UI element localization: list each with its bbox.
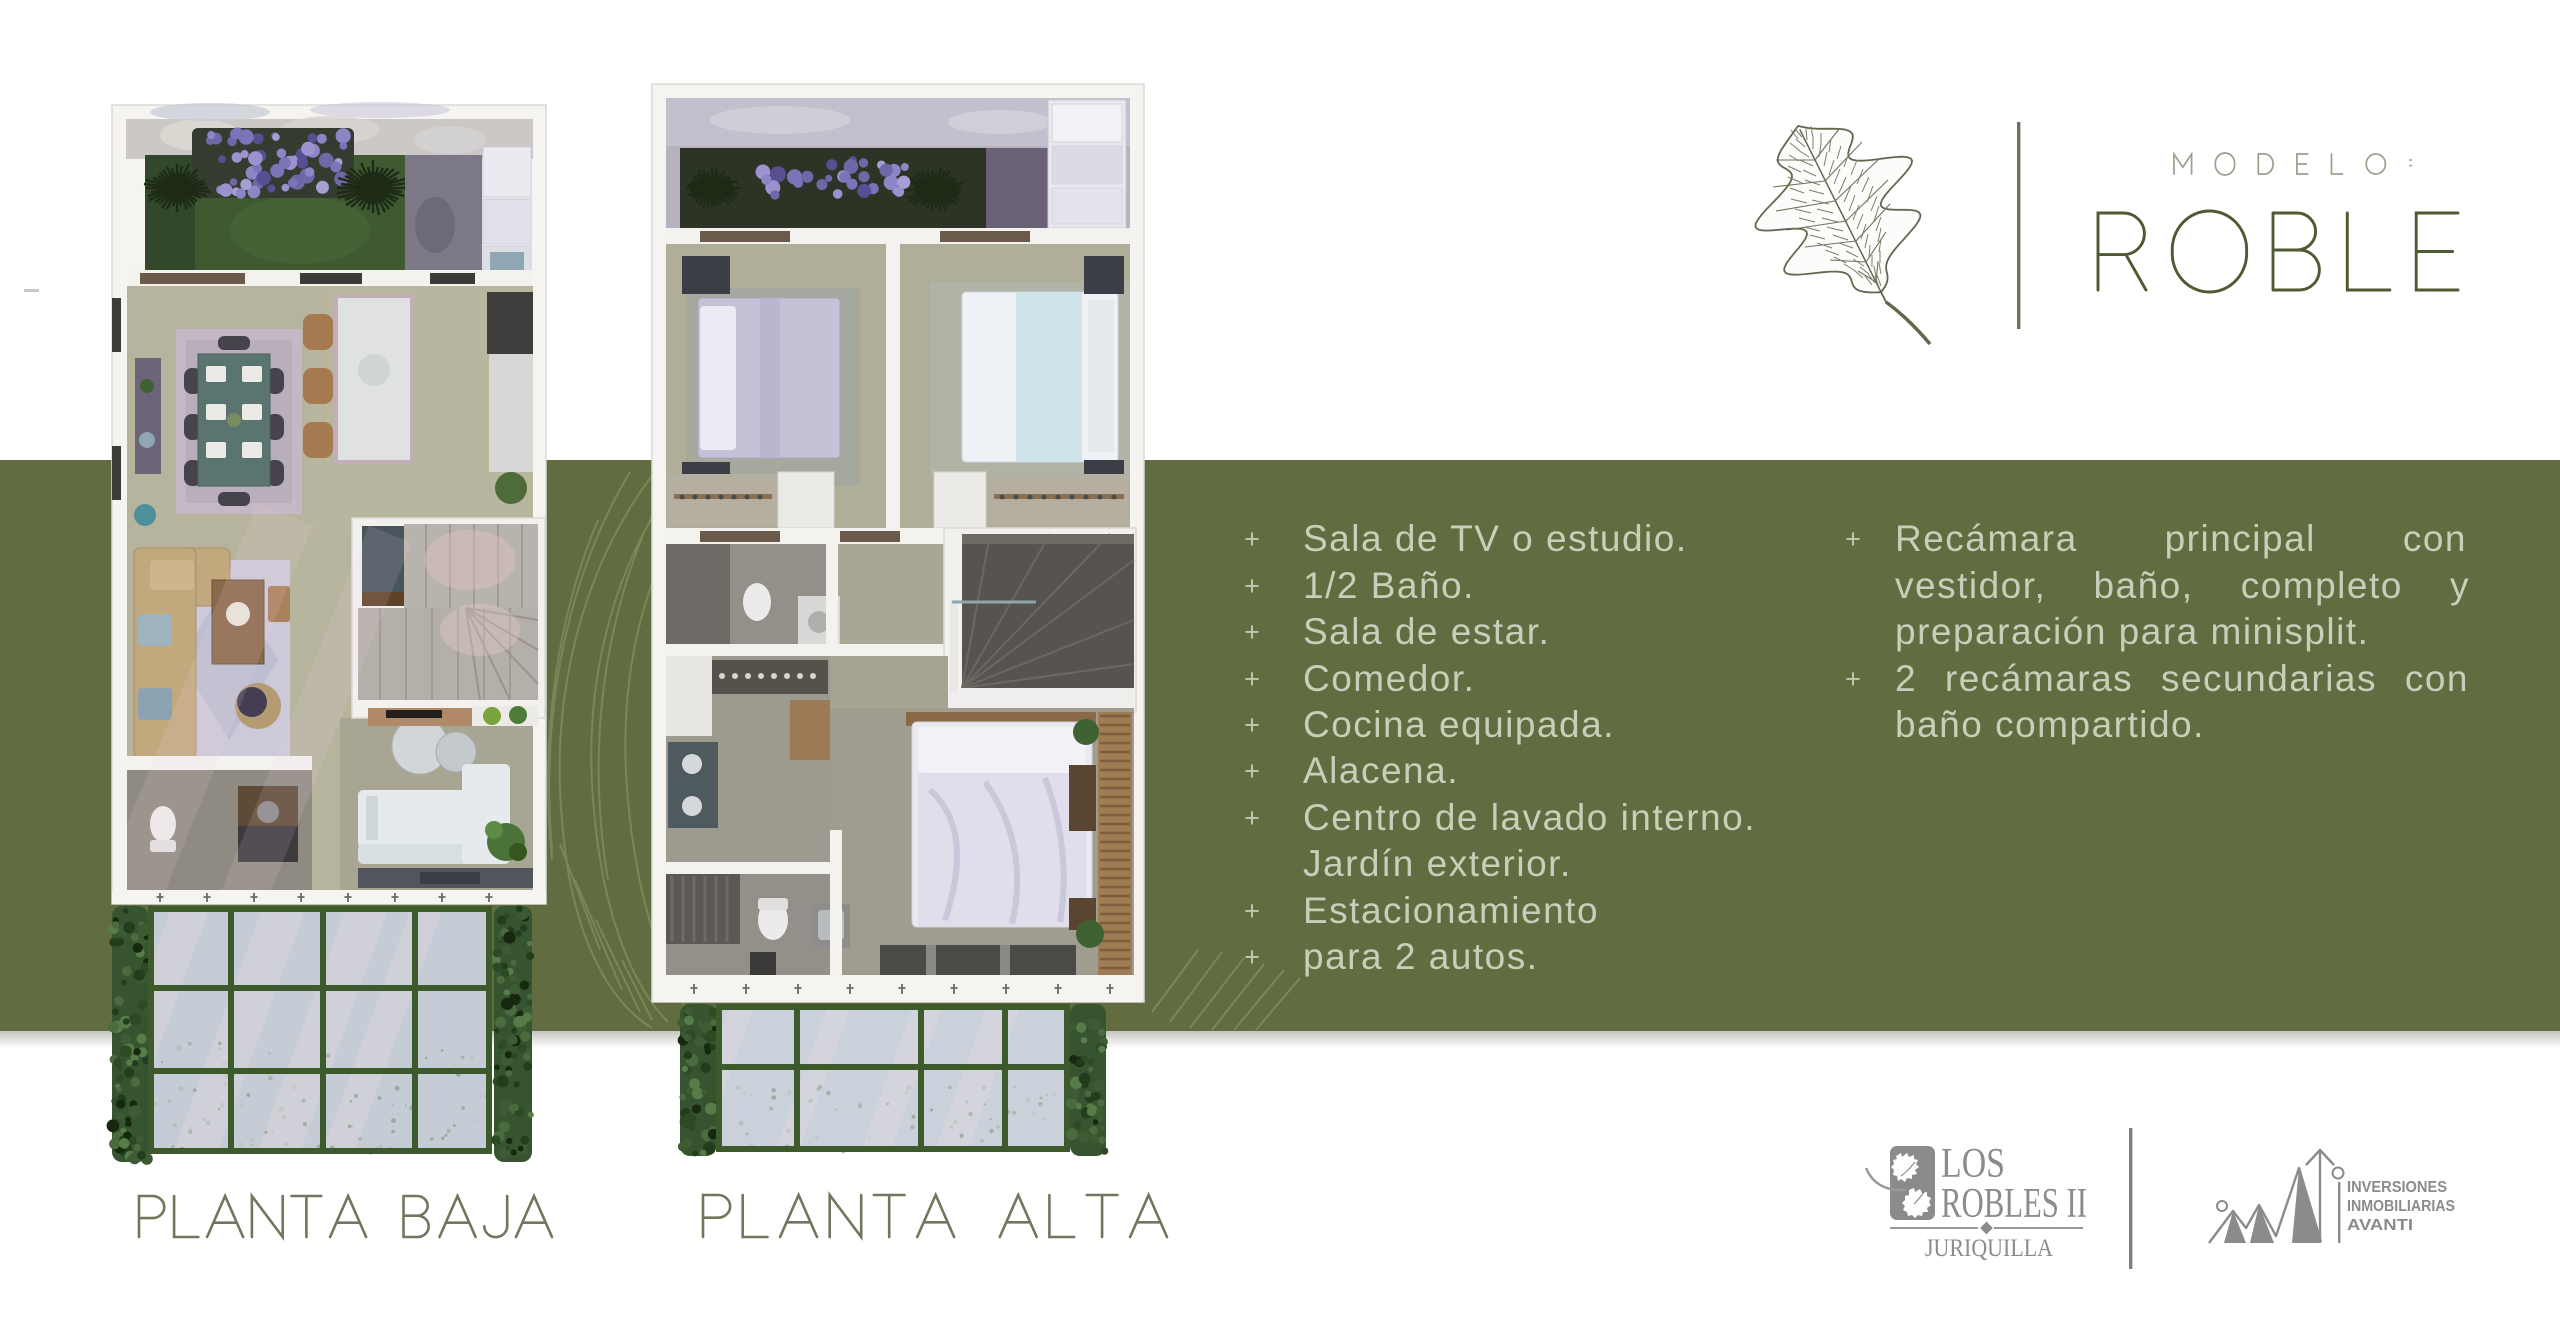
svg-text:JURIQUILLA: JURIQUILLA: [1925, 1235, 2053, 1262]
svg-text:AVANTI: AVANTI: [2347, 1217, 2413, 1234]
svg-text:INVERSIONES: INVERSIONES: [2347, 1179, 2447, 1196]
svg-text:ROBLES II: ROBLES II: [1941, 1181, 2087, 1227]
svg-text:INMOBILIARIAS: INMOBILIARIAS: [2347, 1198, 2455, 1215]
